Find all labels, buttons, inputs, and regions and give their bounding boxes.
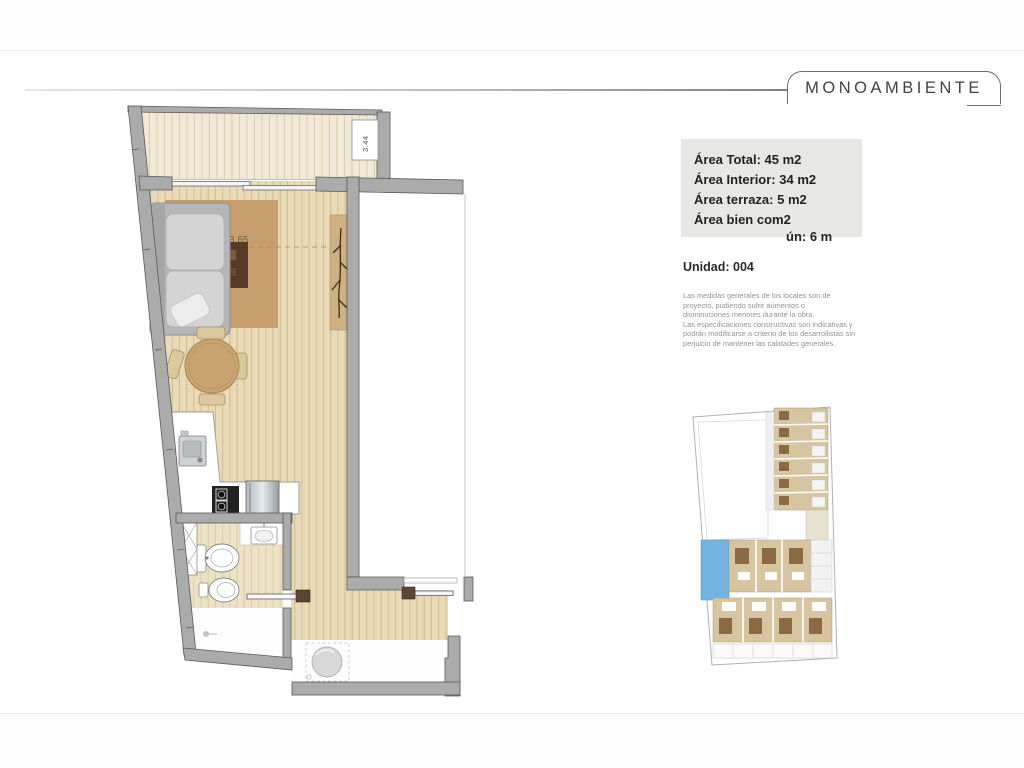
pool — [701, 540, 729, 600]
page: MONOAMBIENTE Área Total: 45 m2 Área Inte… — [0, 0, 1024, 768]
chair — [199, 394, 225, 405]
site-plan — [693, 407, 837, 665]
refrigerator — [246, 481, 279, 514]
site-balcony-strip — [713, 644, 832, 658]
floor-plan-drawing: 3.65 — [0, 0, 1024, 768]
wall-kitchen-bottom — [176, 513, 292, 523]
wall-entry-hook — [464, 577, 473, 601]
site-connector — [806, 510, 828, 540]
stove — [212, 486, 239, 514]
entry-corridor-floor — [347, 590, 448, 640]
wall-shelf — [330, 215, 348, 330]
site-courtyard — [698, 420, 768, 540]
wall-bottom — [292, 682, 460, 695]
terrace-label-box: 3.44 — [352, 120, 378, 160]
kitchen-sink — [179, 431, 206, 466]
shower-floor — [187, 608, 283, 654]
site-units-middle — [729, 540, 811, 592]
wall-entry-top — [347, 577, 404, 590]
chair — [197, 327, 225, 339]
terrace-dimension: 3.44 — [361, 135, 370, 152]
wall-bath-divider-lower — [283, 608, 291, 658]
toilet — [196, 544, 239, 572]
wall-bath-divider-upper — [283, 513, 291, 590]
site-corridor — [766, 412, 774, 510]
wall-band-right — [316, 177, 463, 194]
wall-right-main — [347, 177, 359, 577]
wall-terrace-right — [377, 112, 390, 180]
terrace-floor — [131, 112, 378, 180]
entry-door — [402, 578, 457, 599]
wall-band-left — [139, 176, 172, 190]
